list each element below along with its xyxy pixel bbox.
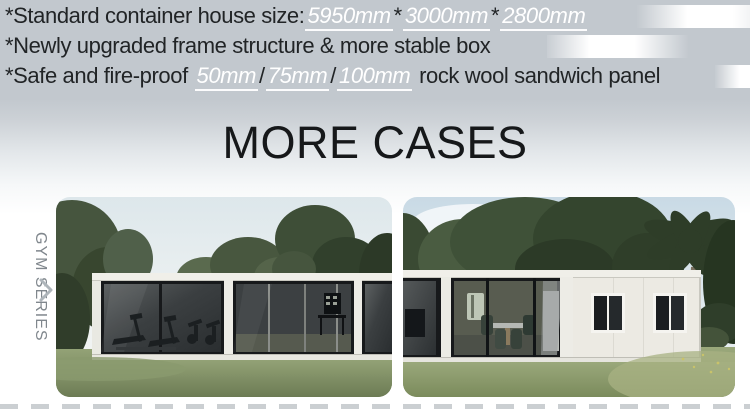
panel-50mm-value: 50mm xyxy=(195,63,259,91)
case-image-gym-1 xyxy=(56,197,392,397)
container-building xyxy=(92,273,392,361)
feature-line-size: *Standard container house size:5950mm*30… xyxy=(5,2,588,30)
multiply-sign: * xyxy=(394,3,402,28)
slash-sign: / xyxy=(259,63,265,88)
chevron-right-icon xyxy=(37,277,55,303)
section-title: MORE CASES xyxy=(0,118,750,168)
feature-text: *Newly upgraded frame structure & more s… xyxy=(5,33,490,58)
gym-exterior-render-1 xyxy=(56,197,392,397)
feature-banner: *Standard container house size:5950mm*30… xyxy=(0,0,750,100)
size-height-value: 2800mm xyxy=(500,3,587,31)
size-width-value: 3000mm xyxy=(403,3,490,31)
highlight-bar xyxy=(715,65,750,88)
panel-100mm-value: 100mm xyxy=(337,63,412,91)
container-building xyxy=(403,270,701,364)
feature-line-panel: *Safe and fire-proof 50mm/75mm/100mm roc… xyxy=(5,62,660,90)
gym-exterior-render-2 xyxy=(403,197,735,397)
multiply-sign: * xyxy=(491,3,499,28)
feature-text: rock wool sandwich panel xyxy=(413,63,660,88)
slash-sign: / xyxy=(330,63,336,88)
highlight-bar xyxy=(636,5,750,28)
case-image-gym-2 xyxy=(403,197,735,397)
feature-line-frame: *Newly upgraded frame structure & more s… xyxy=(5,32,490,60)
promo-slide: *Standard container house size:5950mm*30… xyxy=(0,0,750,412)
size-length-value: 5950mm xyxy=(305,3,392,31)
dashed-divider xyxy=(0,404,750,409)
panel-75mm-value: 75mm xyxy=(266,63,330,91)
series-rail: GYM SERIES xyxy=(0,0,56,412)
highlight-bar xyxy=(547,35,689,58)
